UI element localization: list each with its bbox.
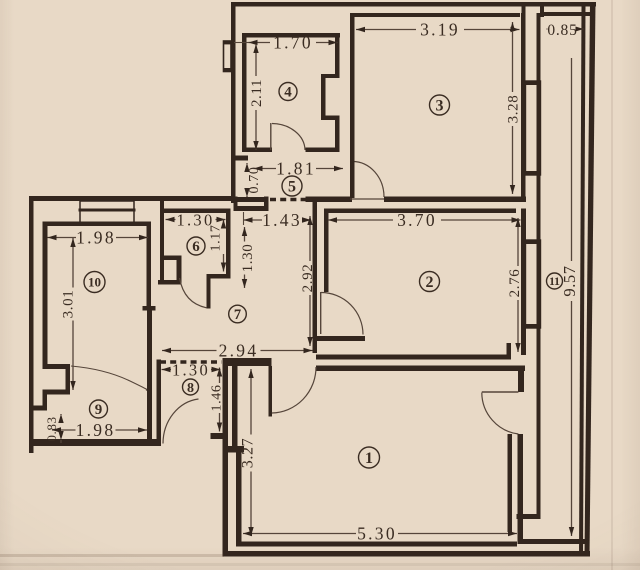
svg-text:0.70: 0.70 bbox=[247, 167, 262, 194]
svg-text:3.01: 3.01 bbox=[61, 290, 77, 319]
svg-text:5: 5 bbox=[288, 178, 296, 195]
svg-text:1: 1 bbox=[365, 450, 373, 467]
svg-text:2.94: 2.94 bbox=[219, 341, 259, 361]
svg-text:1.70: 1.70 bbox=[273, 33, 313, 53]
svg-text:10: 10 bbox=[88, 274, 101, 289]
svg-text:1.98: 1.98 bbox=[76, 420, 116, 440]
svg-text:1.98: 1.98 bbox=[76, 228, 116, 248]
svg-text:3: 3 bbox=[436, 97, 444, 114]
svg-text:2.76: 2.76 bbox=[507, 269, 523, 298]
svg-text:7: 7 bbox=[234, 307, 241, 323]
svg-text:9: 9 bbox=[95, 402, 103, 418]
svg-text:1.81: 1.81 bbox=[276, 159, 316, 179]
svg-text:8: 8 bbox=[187, 381, 194, 396]
svg-text:1.43: 1.43 bbox=[262, 210, 302, 230]
svg-text:3.28: 3.28 bbox=[506, 95, 522, 124]
svg-text:1.30: 1.30 bbox=[172, 361, 210, 380]
svg-text:4: 4 bbox=[284, 85, 292, 101]
svg-text:1.46: 1.46 bbox=[210, 385, 225, 412]
svg-text:2.92: 2.92 bbox=[300, 264, 316, 293]
svg-text:1.17: 1.17 bbox=[209, 225, 224, 252]
svg-text:3.70: 3.70 bbox=[397, 210, 437, 230]
svg-text:2.11: 2.11 bbox=[249, 79, 265, 107]
svg-text:6: 6 bbox=[192, 239, 200, 255]
svg-text:3.27: 3.27 bbox=[240, 438, 257, 468]
svg-text:2: 2 bbox=[426, 274, 434, 291]
svg-text:1.30: 1.30 bbox=[240, 244, 256, 273]
svg-text:0.85: 0.85 bbox=[547, 22, 577, 39]
svg-text:3.19: 3.19 bbox=[420, 20, 460, 40]
svg-text:11: 11 bbox=[549, 276, 560, 288]
svg-text:5.30: 5.30 bbox=[357, 524, 397, 544]
